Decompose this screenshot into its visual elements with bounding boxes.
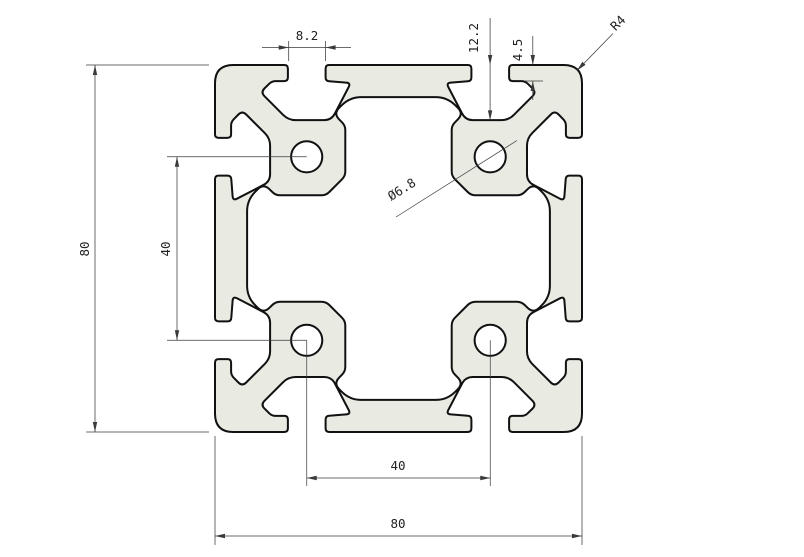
dim-corner-radius-label: R4 — [607, 12, 628, 33]
dim-overall-height-label: 80 — [77, 241, 92, 256]
profile-outline — [215, 65, 582, 432]
dim-hole-diameter-label: Ø6.8 — [385, 175, 418, 204]
dim-overall-height: 80 — [77, 65, 209, 432]
dim-hole-spacing-horizontal-label: 40 — [390, 458, 405, 473]
extrusion-profile-drawing: 8.212.24.5R4Ø6.880404080 — [0, 0, 804, 557]
dim-hole-spacing-vertical-label: 40 — [158, 241, 173, 256]
dim-corner-radius: R4 — [575, 12, 628, 72]
dim-slot-opening-label: 8.2 — [296, 28, 319, 43]
dim-slot-opening: 8.2 — [262, 28, 351, 61]
dim-slot-depth-label: 12.2 — [466, 23, 481, 53]
dim-overall-width: 80 — [215, 436, 582, 545]
dim-overall-width-label: 80 — [390, 516, 405, 531]
dim-lip-thickness-label: 4.5 — [510, 39, 525, 62]
technical-drawing-canvas: 8.212.24.5R4Ø6.880404080 — [0, 0, 804, 557]
